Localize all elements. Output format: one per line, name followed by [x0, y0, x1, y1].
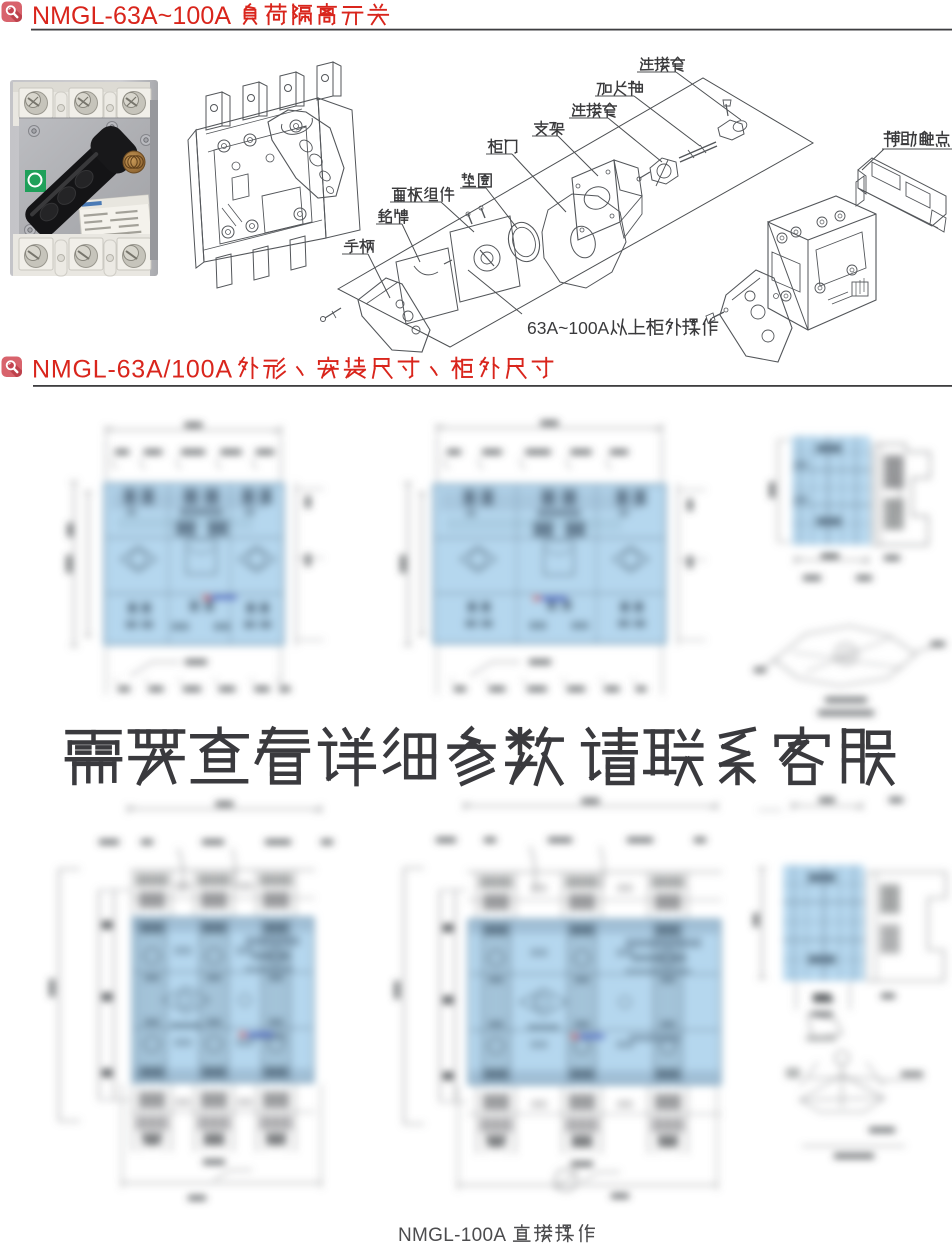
svg-text:63A~100A: 63A~100A [527, 318, 610, 338]
svg-text:NMGL-63A/100A: NMGL-63A/100A [32, 356, 232, 384]
svg-text:NMGL-63A~100A: NMGL-63A~100A [32, 2, 231, 30]
svg-text:NMGL-100A: NMGL-100A [398, 1225, 506, 1246]
